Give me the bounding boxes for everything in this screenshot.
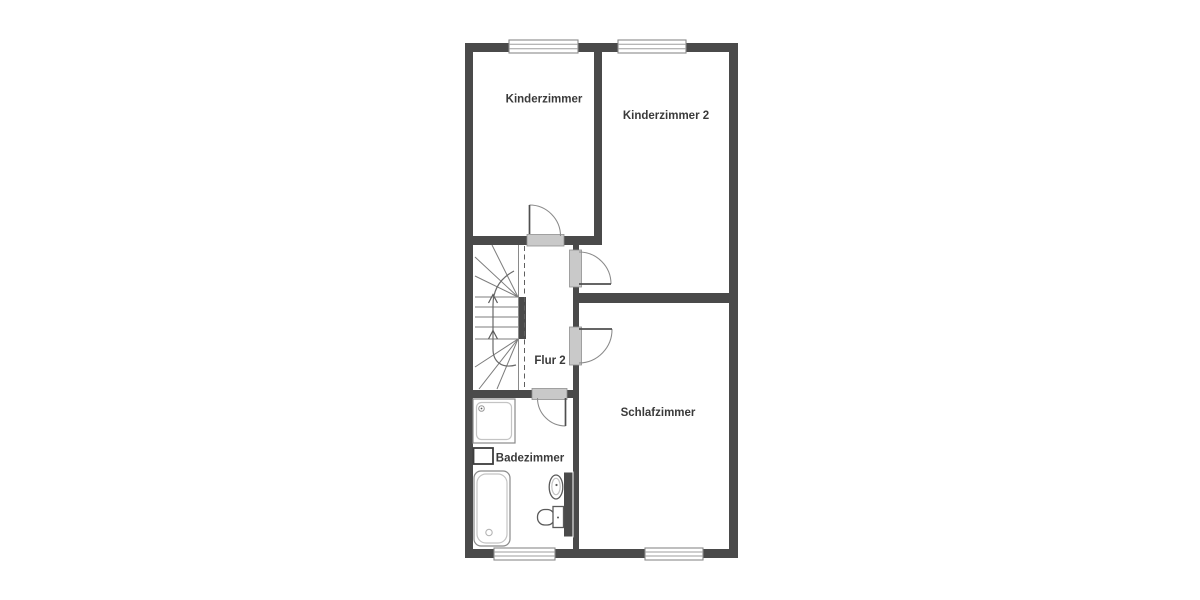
wall-exterior-left <box>465 43 473 558</box>
room-label-kinderzimmer: Kinderzimmer <box>506 94 583 106</box>
door-schlafzimmer <box>570 327 613 365</box>
window-kinderzimmer <box>509 40 578 53</box>
bathtub <box>474 471 510 546</box>
washing-machine <box>474 448 494 464</box>
floorplan-canvas: Kinderzimmer Kinderzimmer 2 Flur 2 Schla… <box>0 0 1200 600</box>
door-schlafzimmer-swing-arc <box>579 329 612 363</box>
door-kinderzimmer-2-swing-arc <box>579 252 611 284</box>
wall-kinderzimmer-south-left <box>465 236 527 245</box>
door-schlafzimmer-threshold <box>570 327 582 365</box>
door-badezimmer-threshold <box>532 389 567 400</box>
window-schlafzimmer <box>645 548 703 560</box>
washbasin <box>549 475 563 499</box>
wall-hall-east-middle <box>573 287 579 327</box>
room-label-schlafzimmer: Schlafzimmer <box>621 407 696 419</box>
room-label-kinderzimmer-2: Kinderzimmer 2 <box>623 110 709 122</box>
wall-kinderzimmer-south-right <box>564 236 602 245</box>
room-label-badezimmer: Badezimmer <box>496 453 565 465</box>
door-kinderzimmer <box>527 205 564 246</box>
staircase-winders-lower <box>475 339 518 389</box>
wall-exterior-top <box>465 43 738 52</box>
door-kinderzimmer-swing-arc <box>530 205 561 236</box>
staircase <box>475 245 525 390</box>
wall-schlafzimmer-north <box>579 293 729 303</box>
door-kinderzimmer-2-threshold <box>570 250 582 287</box>
door-badezimmer-swing-arc <box>538 398 566 426</box>
room-labels: Kinderzimmer Kinderzimmer 2 Flur 2 Schla… <box>496 94 709 465</box>
floorplan-page: Kinderzimmer Kinderzimmer 2 Flur 2 Schla… <box>0 0 1200 600</box>
room-label-flur-2: Flur 2 <box>534 355 565 367</box>
window-badezimmer <box>494 548 555 560</box>
staircase-treads <box>475 297 518 339</box>
wall-between-kinderzimmer <box>594 52 602 245</box>
wall-plumbing-shaft <box>564 472 574 537</box>
door-kinderzimmer-threshold <box>527 235 564 247</box>
window-kinderzimmer-2 <box>618 40 686 53</box>
wall-bathroom-north-right <box>566 390 579 398</box>
wall-exterior-right <box>729 43 738 558</box>
door-badezimmer <box>532 389 567 427</box>
toilet <box>538 507 564 528</box>
door-kinderzimmer-2 <box>570 250 612 287</box>
shower <box>473 399 515 443</box>
wall-bathroom-north-left <box>465 390 532 398</box>
